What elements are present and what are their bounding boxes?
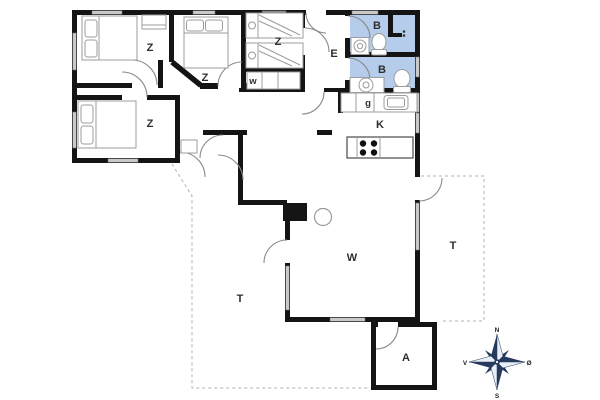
- wall-bedroom4-north-a: [72, 95, 122, 100]
- wall-bedroom4-north-b: [147, 95, 180, 100]
- wall-living-north-ledge: [238, 200, 287, 205]
- wall-bedroom2-west: [169, 10, 174, 62]
- label-wardrobe: w: [248, 76, 257, 87]
- window-bedroom2-north: [193, 11, 215, 15]
- wall-bath-west-a: [345, 10, 350, 16]
- toilet-bathroom1: [372, 34, 386, 51]
- label-bedroom2: Z: [202, 72, 209, 84]
- label-bedroom1: Z: [147, 42, 154, 54]
- wall-bedroom1-south: [72, 83, 132, 88]
- furniture: [78, 13, 417, 226]
- window-living-west: [286, 266, 290, 310]
- wall-shower-vertical: [388, 10, 393, 37]
- shower-hinge-dot: [403, 34, 406, 37]
- wall-kitchen-stub: [317, 130, 332, 135]
- window-kitchen-east: [416, 113, 420, 133]
- toilet-bathroom2: [394, 70, 410, 88]
- terrace-outlines: [172, 164, 484, 388]
- wall-annex-east: [432, 322, 437, 390]
- bed-bedroom1: [82, 16, 137, 60]
- window-bedroom4-west: [73, 112, 77, 148]
- window-living-south: [330, 318, 365, 322]
- bed-bedroom4: [78, 101, 136, 148]
- kitchen-terrace-door-arc: [419, 178, 442, 201]
- label-bathroom2: B: [378, 64, 386, 76]
- window-bedroom1-north: [92, 11, 122, 15]
- kitchen-door-arc: [302, 92, 324, 114]
- stove-burner: [371, 149, 377, 155]
- wall-corridor-south: [203, 130, 247, 135]
- window-bedroom4-south: [108, 159, 138, 163]
- label-annex: A: [402, 352, 410, 364]
- window-bathroom2-east: [416, 57, 420, 77]
- wall-annex-north-b: [398, 322, 437, 327]
- stove-burner: [360, 140, 366, 146]
- compass-label-west: V: [463, 360, 468, 367]
- closet-bedroom1: [142, 15, 166, 29]
- label-bedroom3: Z: [275, 36, 282, 48]
- window-bathroom-north: [352, 11, 378, 15]
- wall-annex-west: [371, 322, 376, 390]
- wall-bedroom2-bedroom3: [241, 10, 246, 89]
- stove-burner: [371, 140, 377, 146]
- label-bedroom4: Z: [147, 118, 154, 130]
- bed-bedroom2: [184, 17, 228, 68]
- floor-plan-svg: Z Z Z Z E B B w g K W T T A N S V Ø: [0, 0, 600, 400]
- annex-door-arc: [376, 327, 398, 349]
- wood-stove-circle: [315, 209, 332, 226]
- bedroom3-door-arc: [305, 28, 329, 52]
- wall-annex-south: [371, 385, 437, 390]
- compass-label-south: S: [495, 393, 500, 400]
- terrace-west-outline: [172, 164, 371, 388]
- stove-burner: [360, 149, 366, 155]
- compass-rose: N S V Ø: [463, 327, 532, 400]
- utility-counter: [341, 93, 417, 112]
- corridor-exit-door-arc: [180, 152, 205, 177]
- living-terrace-door-arc: [264, 240, 287, 263]
- compass-label-east: Ø: [526, 360, 531, 367]
- window-living-east: [416, 203, 420, 250]
- compass-center-dot: [496, 361, 498, 363]
- label-bathroom1: B: [373, 20, 381, 32]
- wall-bath-west-c: [345, 80, 350, 93]
- label-kitchen: K: [376, 119, 384, 131]
- compass-label-north: N: [495, 327, 500, 334]
- wall-living-west-upper: [238, 130, 243, 205]
- kitchen-island: [347, 137, 413, 158]
- bedroom1-door-arc: [132, 60, 157, 85]
- label-terrace-west: T: [237, 293, 244, 305]
- wall-junction-stub: [158, 60, 163, 88]
- wall-shower-horizontal: [393, 33, 402, 37]
- label-utility: g: [365, 98, 371, 109]
- closet-vestibule: [181, 140, 197, 153]
- floor-plan-page: Z Z Z Z E B B w g K W T T A N S V Ø: [0, 0, 600, 400]
- label-entrance: E: [330, 48, 337, 60]
- wall-bedroom4-east: [175, 95, 180, 163]
- shower-hinge-dot: [403, 30, 406, 33]
- label-living-room: W: [347, 252, 358, 264]
- fireplace-chimney-block: [283, 203, 307, 221]
- label-terrace-east: T: [450, 240, 457, 252]
- wall-living-west-a: [285, 218, 290, 240]
- window-bedroom1-west: [73, 33, 77, 70]
